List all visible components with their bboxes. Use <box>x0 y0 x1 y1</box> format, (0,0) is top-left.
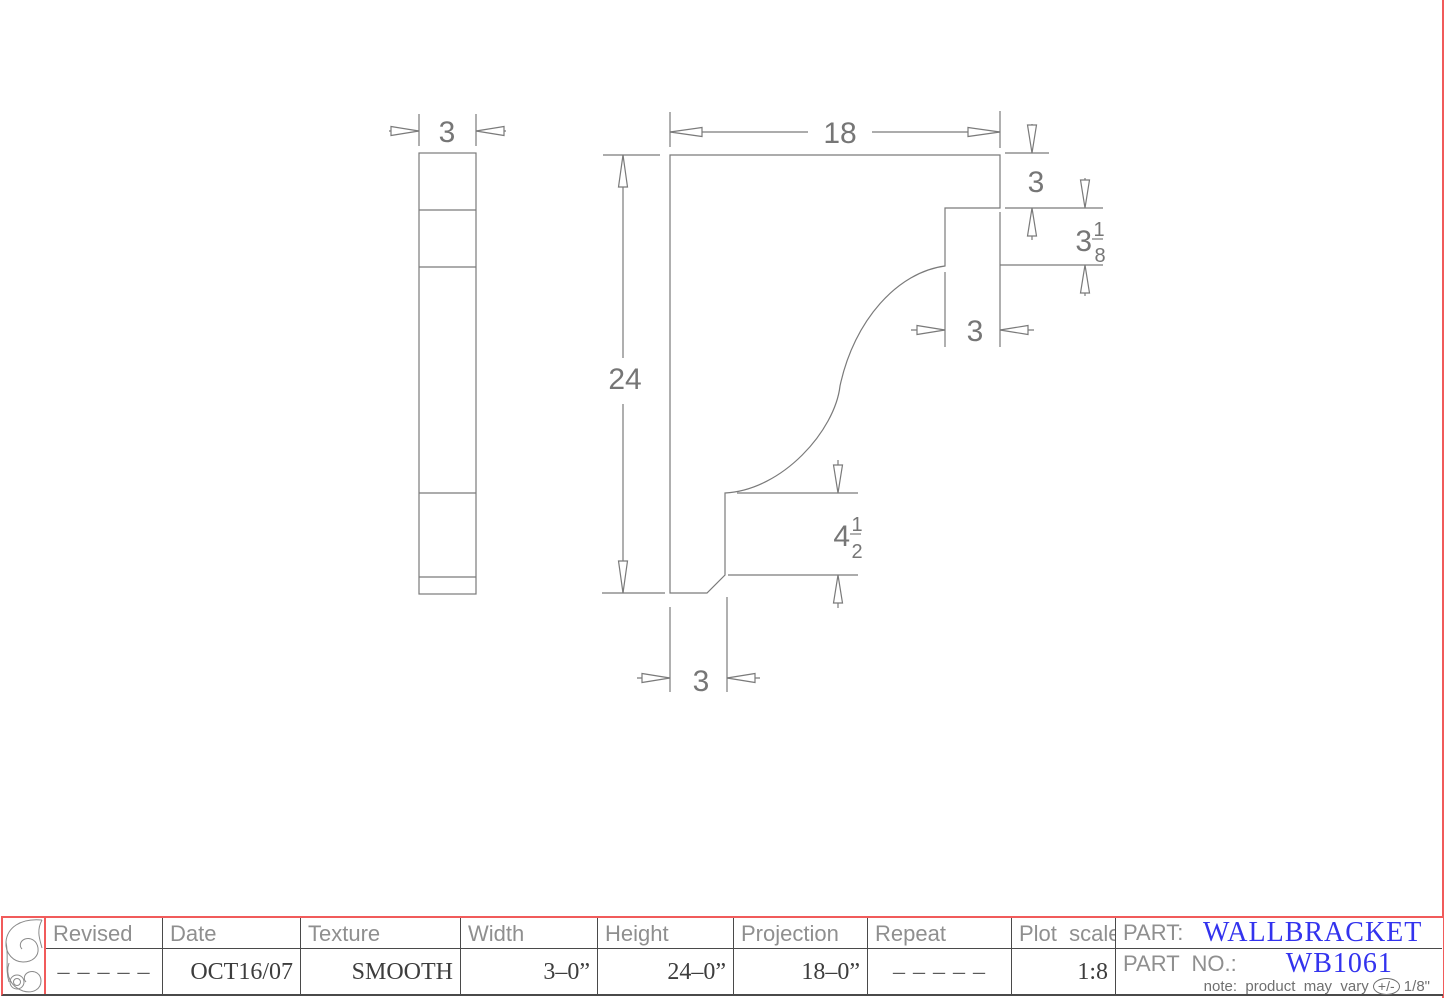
col-height-value: 24–0” <box>598 949 733 994</box>
part-label: PART: <box>1116 920 1183 946</box>
part-no-value: WB1061 <box>1237 948 1442 980</box>
dim-text-notch: 3 <box>967 315 984 348</box>
plus-minus-badge: +/- <box>1373 978 1400 995</box>
part-no-label: PART NO.: <box>1116 951 1237 977</box>
col-projection-value: 18–0” <box>734 949 867 994</box>
col-revised-label: Revised <box>46 918 162 949</box>
note-prefix: note: product may vary <box>1204 978 1373 995</box>
col-plot-scale-value: 1:8 <box>1012 949 1115 994</box>
col-plot-scale-label: Plot scale <box>1012 918 1115 949</box>
col-repeat: Repeat – – – – – <box>868 918 1012 994</box>
col-width: Width 3–0” <box>461 918 598 994</box>
dim-text-thickness: 3 <box>439 116 456 149</box>
col-date: Date OCT16/07 <box>163 918 301 994</box>
part-value: WALLBRACKET <box>1183 917 1442 949</box>
tolerance-note: note: product may vary +/- 1/8" <box>1116 977 1442 995</box>
col-repeat-label: Repeat <box>868 918 1011 949</box>
col-texture: Texture SMOOTH <box>301 918 461 994</box>
company-logo-icon <box>4 918 44 994</box>
dim-text-base-num: 1 <box>851 514 862 536</box>
col-date-label: Date <box>163 918 300 949</box>
col-projection: Projection 18–0” <box>734 918 868 994</box>
logo-cell <box>3 918 46 994</box>
dim-text-height: 24 <box>608 363 641 396</box>
dim-text-base-whole: 4 <box>833 520 850 553</box>
col-date-value: OCT16/07 <box>163 949 300 994</box>
col-height: Height 24–0” <box>598 918 734 994</box>
dim-text-step-den: 8 <box>1094 245 1105 267</box>
note-suffix: 1/8" <box>1400 978 1430 995</box>
col-texture-label: Texture <box>301 918 460 949</box>
title-block: Revised – – – – – Date OCT16/07 Texture … <box>1 916 1443 996</box>
col-projection-label: Projection <box>734 918 867 949</box>
col-revised-value: – – – – – <box>46 949 162 994</box>
col-width-label: Width <box>461 918 597 949</box>
col-repeat-value: – – – – – <box>868 949 1011 994</box>
bracket-drawing: 3 18 24 3 3 1 8 3 4 1 2 3 <box>0 0 1445 916</box>
side-view <box>419 153 476 594</box>
dim-text-base-den: 2 <box>851 541 862 563</box>
col-height-label: Height <box>598 918 733 949</box>
dim-text-arm-depth: 3 <box>1028 166 1045 199</box>
col-texture-value: SMOOTH <box>301 949 460 994</box>
dim-text-step-whole: 3 <box>1075 225 1092 258</box>
part-row: PART: WALLBRACKET <box>1116 918 1442 949</box>
part-cell: PART: WALLBRACKET PART NO.: WB1061 note:… <box>1116 918 1442 994</box>
dim-text-leg: 3 <box>693 665 710 698</box>
dim-text-step-num: 1 <box>1093 219 1104 241</box>
drawing-sheet: 3 18 24 3 3 1 8 3 4 1 2 3 <box>0 0 1445 998</box>
col-width-value: 3–0” <box>461 949 597 994</box>
col-plot-scale: Plot scale 1:8 <box>1012 918 1116 994</box>
part-no-row: PART NO.: WB1061 note: product may vary … <box>1116 949 1442 995</box>
dim-text-projection: 18 <box>823 117 856 150</box>
col-revised: Revised – – – – – <box>46 918 163 994</box>
